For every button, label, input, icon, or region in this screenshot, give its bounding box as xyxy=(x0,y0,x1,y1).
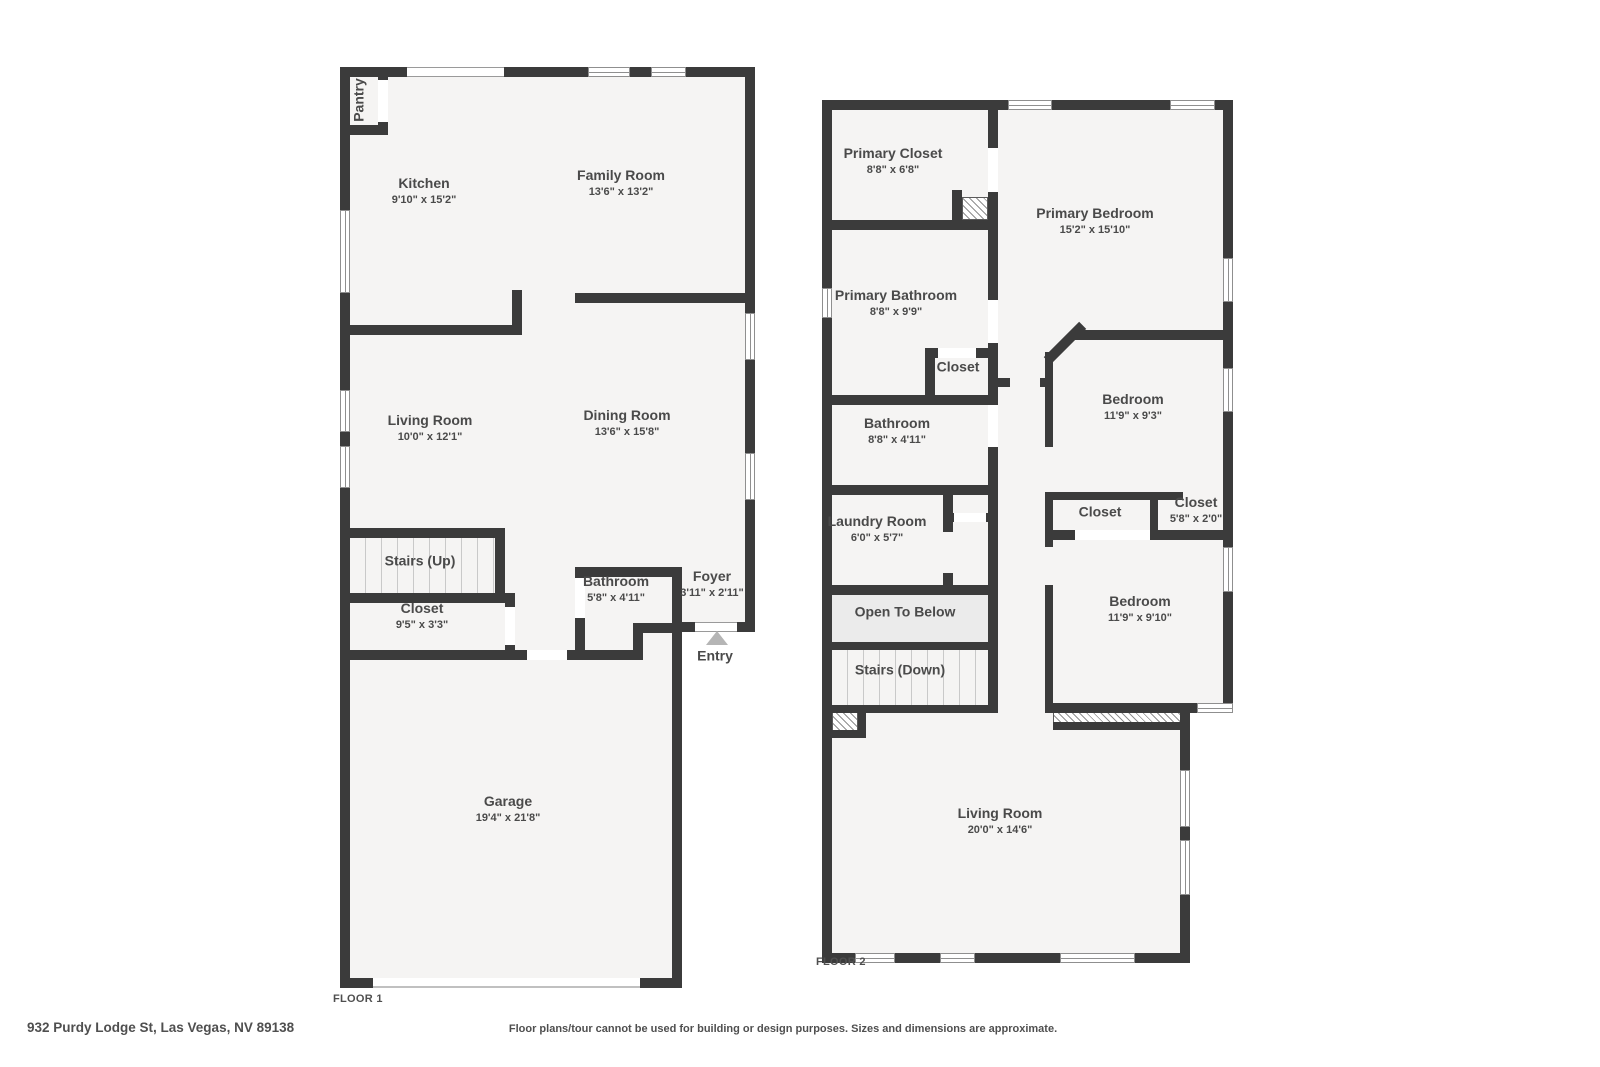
window xyxy=(588,67,630,77)
wall xyxy=(943,573,953,585)
room-label-primary-bathroom: Primary Bathroom 8'8" x 9'9" xyxy=(835,287,957,319)
wall xyxy=(822,220,998,230)
wall xyxy=(943,485,953,532)
wall xyxy=(822,395,998,405)
floor2-tag: FLOOR 2 xyxy=(816,956,866,968)
primary-closet-door-opening xyxy=(988,148,998,192)
room-label-laundry-room: Laundry Room 6'0" x 5'7" xyxy=(828,513,927,545)
primary-suite-door-opening xyxy=(988,300,998,343)
room-label-bedroom-1: Bedroom 11'9" x 9'3" xyxy=(1102,391,1163,423)
window xyxy=(1180,770,1190,827)
wall xyxy=(822,485,998,495)
window xyxy=(940,953,975,963)
wall xyxy=(1073,330,1233,340)
wall xyxy=(1045,585,1053,711)
wall xyxy=(822,642,998,650)
wall xyxy=(822,730,866,738)
property-address: 932 Purdy Lodge St, Las Vegas, NV 89138 xyxy=(27,1020,294,1035)
window xyxy=(340,210,350,293)
linen-door-opening xyxy=(954,513,986,522)
room-label-foyer: Foyer 3'11" x 2'11" xyxy=(680,568,743,600)
wall xyxy=(822,585,998,595)
room-label-closet-1: Closet xyxy=(1079,503,1122,521)
room-label-stairs-up: Stairs (Up) xyxy=(385,552,456,570)
garage-vehicle-door xyxy=(373,978,640,988)
kitchen-opening xyxy=(407,67,504,77)
room-label-bathroom-f1: Bathroom 5'8" x 4'11" xyxy=(583,573,649,605)
wall xyxy=(340,325,522,335)
wall xyxy=(340,67,755,77)
window xyxy=(1008,100,1052,110)
wall xyxy=(1053,722,1190,730)
window xyxy=(1060,953,1135,963)
room-label-dining-room: Dining Room 13'6" x 15'8" xyxy=(583,407,670,439)
room-label-bathroom-f2: Bathroom 8'8" x 4'11" xyxy=(864,415,930,447)
entry-arrow-icon xyxy=(706,631,728,645)
window xyxy=(651,67,686,77)
wall xyxy=(643,623,682,633)
floorplan-canvas: Pantry Kitchen 9'10" x 15'2" Family Room… xyxy=(0,0,1600,1067)
wall xyxy=(340,528,505,538)
wall xyxy=(1045,352,1053,447)
window xyxy=(1180,840,1190,895)
bathroom-door-opening-f2 xyxy=(988,405,998,447)
wall xyxy=(986,513,998,522)
room-label-living-room-f2: Living Room 20'0" x 14'6" xyxy=(958,805,1043,837)
window xyxy=(1223,368,1233,412)
wall xyxy=(575,293,755,303)
closet1-door-opening xyxy=(1075,530,1150,540)
wall xyxy=(340,125,388,135)
wall xyxy=(822,705,998,713)
floor1-tag: FLOOR 1 xyxy=(333,993,383,1005)
wall xyxy=(1040,378,1053,387)
window xyxy=(1170,100,1215,110)
room-label-kitchen: Kitchen 9'10" x 15'2" xyxy=(392,175,457,207)
closet-door-opening xyxy=(505,607,515,645)
wall xyxy=(512,290,522,335)
room-label-pantry: Pantry xyxy=(350,78,368,122)
hall-closet-door-opening xyxy=(938,348,976,358)
wall xyxy=(340,650,527,660)
window xyxy=(745,313,755,360)
room-label-living-room-f1: Living Room 10'0" x 12'1" xyxy=(388,412,473,444)
wall xyxy=(633,623,643,660)
room-label-entry: Entry xyxy=(697,647,733,665)
shower-hatch xyxy=(962,197,988,220)
chase-hatch xyxy=(832,712,858,731)
wall xyxy=(988,378,1010,387)
window xyxy=(1223,547,1233,592)
wall xyxy=(947,513,954,522)
window xyxy=(340,390,350,432)
room-label-stairs-down: Stairs (Down) xyxy=(855,661,945,679)
room-label-hall-closet: Closet xyxy=(937,358,980,376)
room-label-primary-bedroom: Primary Bedroom 15'2" x 15'10" xyxy=(1036,205,1153,237)
window xyxy=(822,288,832,318)
room-label-open-to-below: Open To Below xyxy=(855,603,956,621)
room-label-primary-closet: Primary Closet 8'8" x 6'8" xyxy=(844,145,943,177)
room-label-bedroom-2: Bedroom 11'9" x 9'10" xyxy=(1108,593,1172,625)
window xyxy=(745,453,755,500)
window xyxy=(340,446,350,488)
wall xyxy=(1045,492,1183,500)
wall xyxy=(495,528,505,603)
window xyxy=(1223,258,1233,302)
garage-door-opening xyxy=(527,650,567,660)
window xyxy=(1197,703,1233,713)
wall xyxy=(1180,712,1190,963)
room-label-family-room: Family Room 13'6" x 13'2" xyxy=(577,167,665,199)
wall xyxy=(952,190,962,228)
room-label-closet-f1: Closet 9'5" x 3'3" xyxy=(396,600,448,632)
pantry-door-opening xyxy=(378,80,388,122)
room-label-garage: Garage 19'4" x 21'8" xyxy=(476,793,541,825)
room-label-closet-2: Closet 5'8" x 2'0" xyxy=(1170,494,1222,526)
disclaimer-text: Floor plans/tour cannot be used for buil… xyxy=(509,1023,1057,1035)
